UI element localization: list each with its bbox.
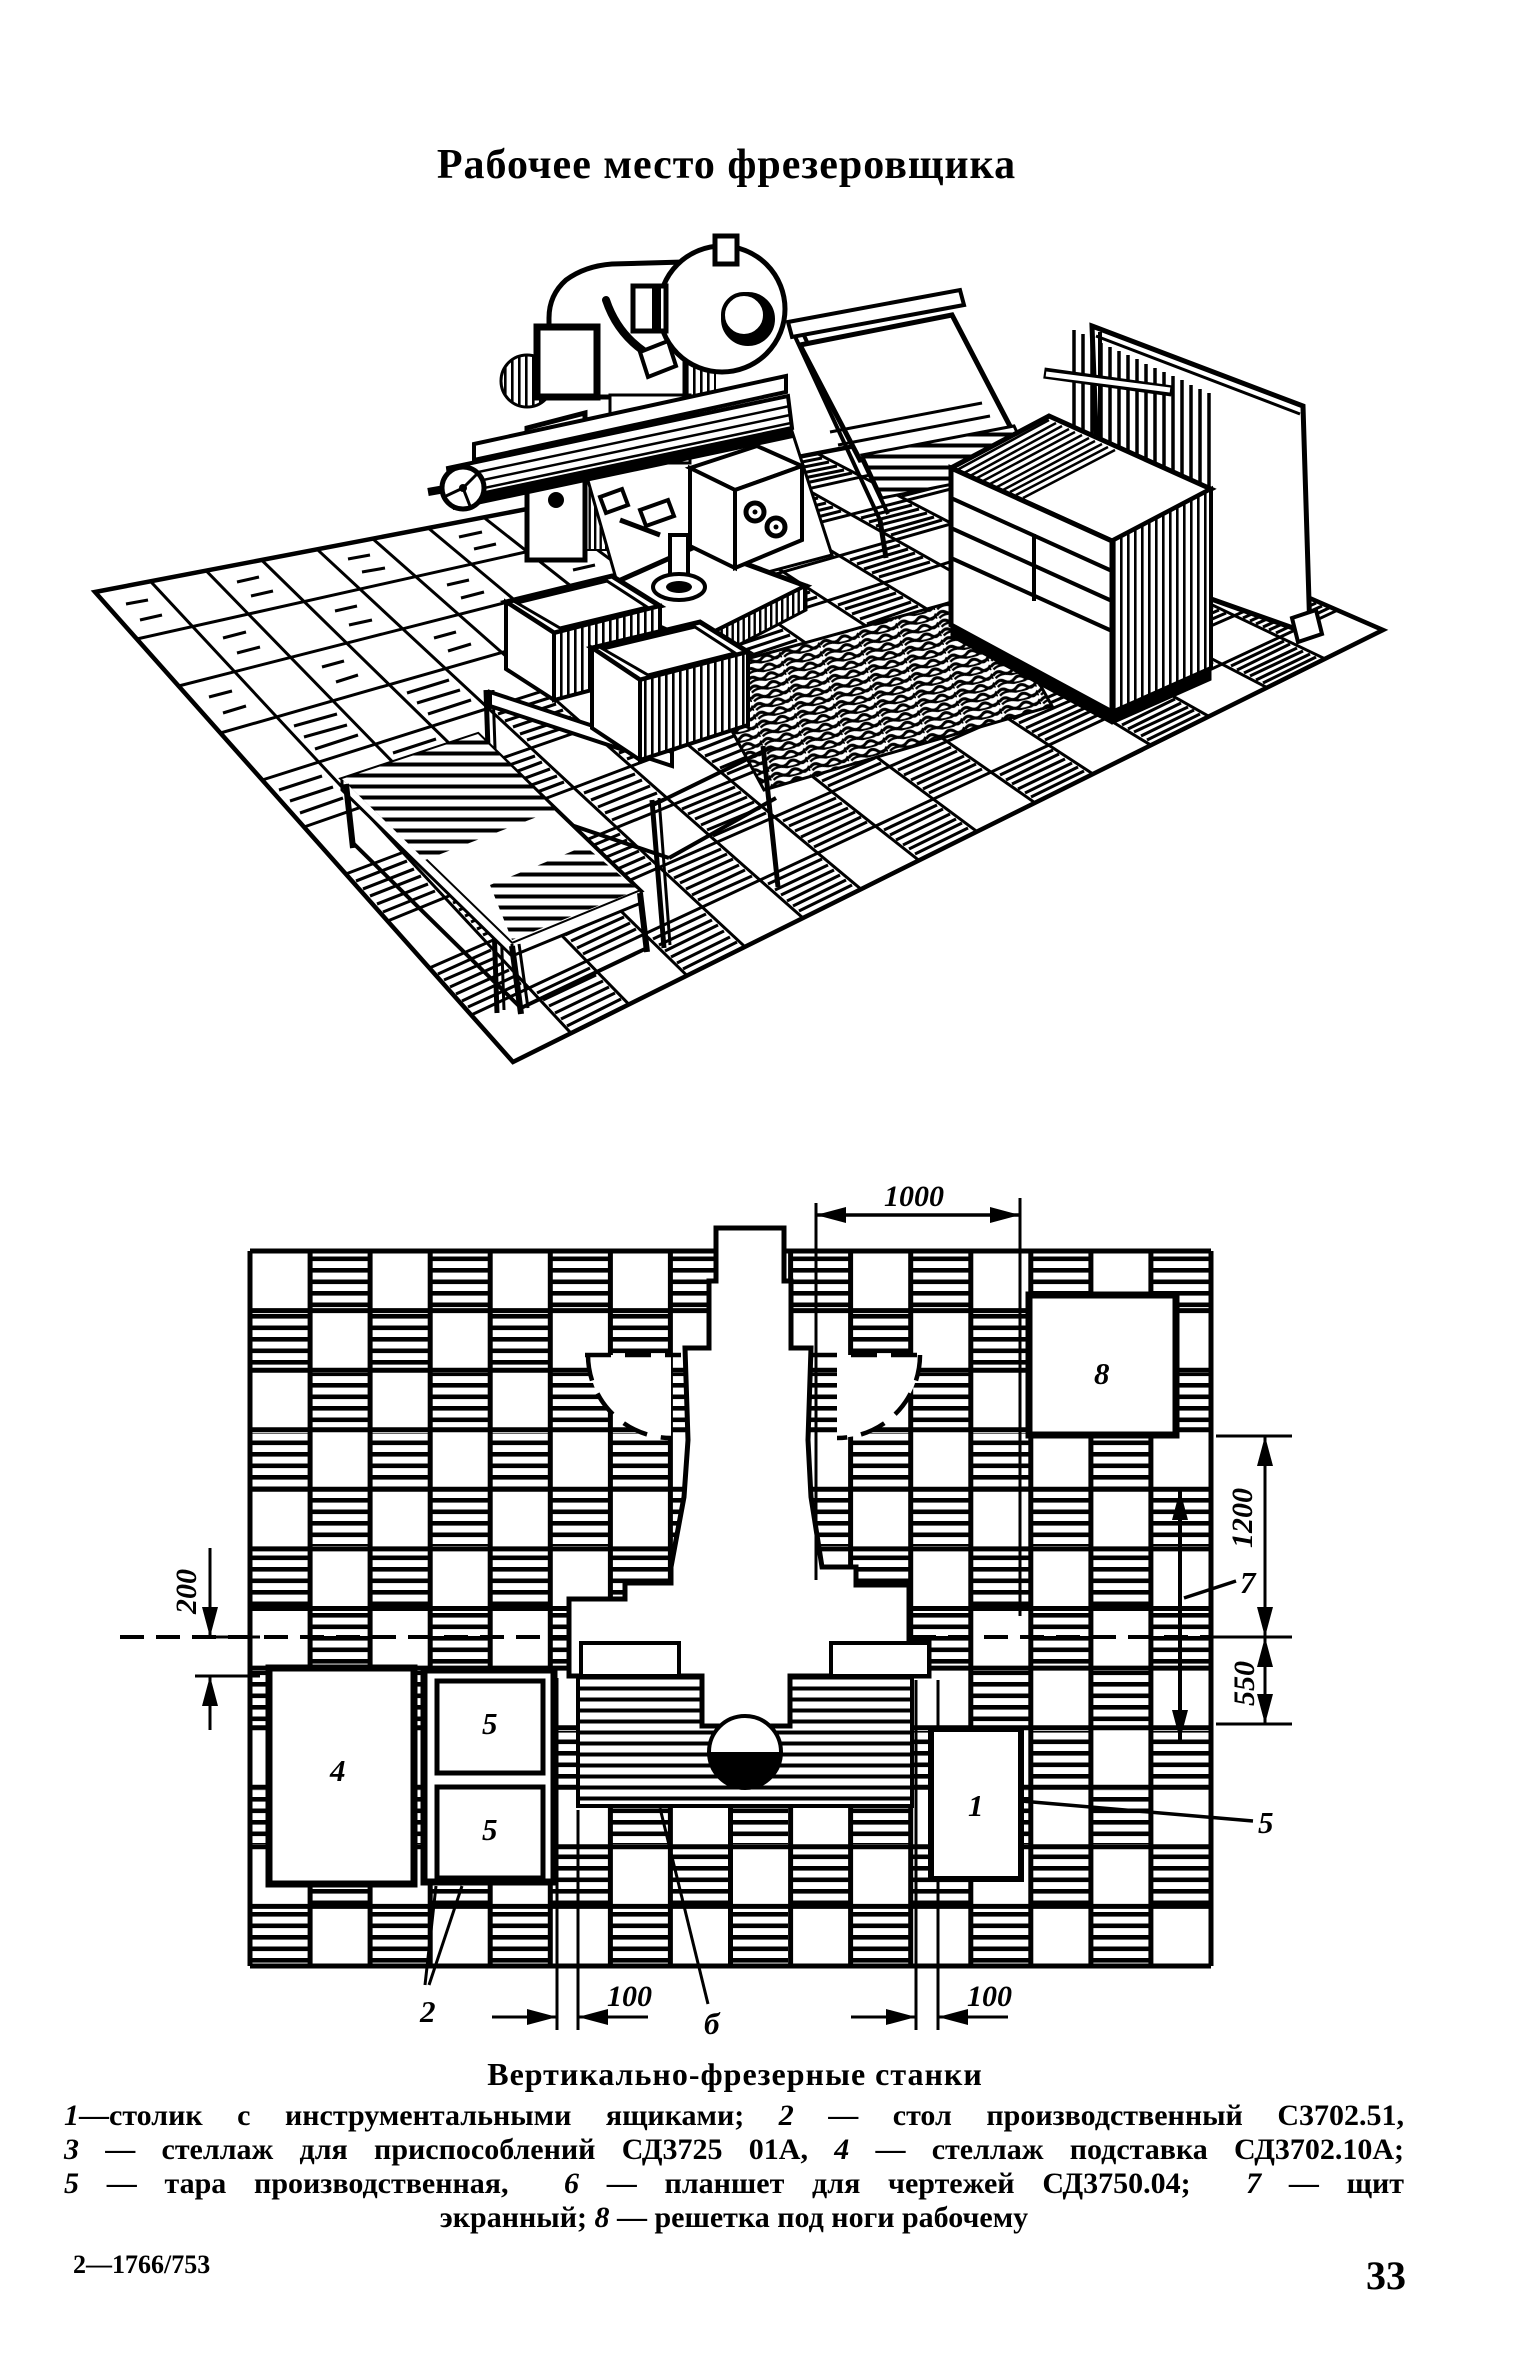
svg-text:5: 5 — [482, 1706, 498, 1741]
svg-text:1200: 1200 — [1226, 1488, 1259, 1548]
svg-text:8: 8 — [1094, 1356, 1110, 1391]
svg-text:б: б — [704, 2006, 721, 2041]
svg-text:4: 4 — [329, 1753, 346, 1788]
svg-text:5: 5 — [482, 1812, 498, 1847]
svg-text:1: 1 — [968, 1788, 984, 1823]
svg-text:1000: 1000 — [884, 1180, 944, 1213]
svg-text:550: 550 — [1228, 1661, 1261, 1706]
svg-text:100: 100 — [967, 1980, 1012, 2013]
svg-text:5: 5 — [1258, 1805, 1274, 1840]
svg-text:2: 2 — [419, 1994, 436, 2029]
svg-text:200: 200 — [170, 1569, 203, 1615]
svg-text:7: 7 — [1240, 1565, 1257, 1600]
svg-text:100: 100 — [607, 1980, 652, 2013]
